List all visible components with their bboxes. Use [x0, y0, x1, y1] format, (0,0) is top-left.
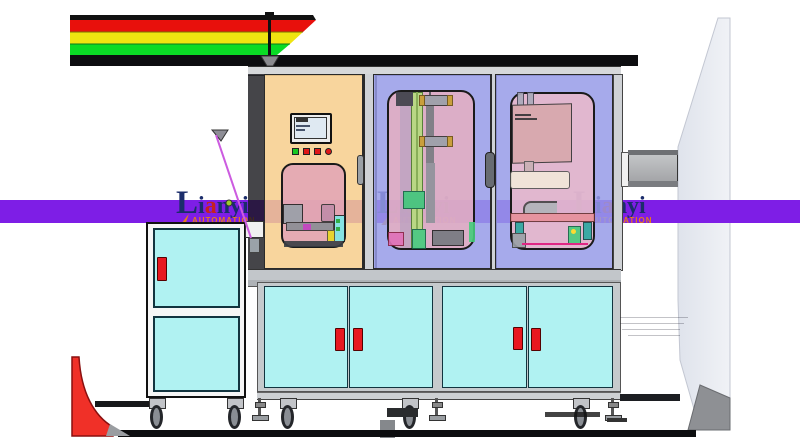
cabinet-handle — [335, 328, 345, 351]
hidden-line — [620, 323, 684, 324]
rear-caster-shadow — [545, 412, 600, 417]
process-door-handle — [485, 152, 495, 188]
label-line — [515, 118, 537, 120]
cart-base-bar — [95, 401, 149, 407]
floor-connector — [620, 394, 680, 401]
brass-fitting — [447, 95, 453, 106]
slide-rail — [426, 96, 434, 164]
small-motor — [321, 204, 335, 222]
cart-panel-lower — [153, 316, 240, 392]
cabinet-handle — [353, 328, 363, 351]
start-button — [292, 148, 299, 155]
drive-box — [403, 191, 425, 209]
control-door-handle — [357, 155, 364, 185]
side-actuator — [469, 222, 475, 242]
hmi-menubar — [296, 118, 308, 122]
brass-fitting — [447, 136, 453, 147]
track-line — [522, 243, 588, 245]
valve-led — [336, 219, 340, 223]
belt-seam — [416, 92, 418, 248]
corner-fixture — [512, 233, 526, 248]
mount-plate — [283, 204, 303, 224]
backing-panel — [512, 103, 572, 164]
rear-caster-shadow — [387, 408, 418, 417]
fixture-block — [388, 232, 404, 246]
hidden-line — [622, 329, 680, 330]
machine-layer — [0, 0, 800, 438]
frame-bracket — [249, 238, 260, 253]
hmi-text-line — [296, 129, 305, 131]
cabinet-handle — [513, 327, 523, 350]
connector-block — [303, 224, 311, 230]
reset-button — [314, 148, 321, 155]
rear-caster-shadow — [607, 418, 627, 422]
cart-caster — [148, 398, 166, 432]
transfer-rail — [510, 213, 595, 222]
cart-handle — [157, 257, 167, 281]
hmi-text-line — [296, 125, 310, 127]
emergency-stop-button — [325, 148, 332, 155]
cylinder-band — [628, 181, 678, 187]
machine-render: Lianyi AUTOMATION Lianyi AUTOMATION Lian… — [0, 0, 800, 438]
cabinet-center-post — [433, 286, 442, 388]
indicator-dot — [571, 229, 576, 234]
stop-button — [303, 148, 310, 155]
rail-pillar — [583, 222, 592, 240]
actuator-block — [412, 229, 426, 249]
brass-fitting — [419, 136, 425, 147]
cylinder-band — [628, 150, 678, 155]
hidden-line — [628, 335, 680, 336]
cross-beam — [510, 171, 570, 189]
cart-caster — [226, 398, 244, 432]
belt-frame — [400, 92, 411, 248]
label-line — [515, 114, 531, 116]
floor-bar — [118, 430, 696, 437]
leveling-foot — [252, 398, 268, 421]
machine-caster — [279, 398, 297, 432]
top-beam — [70, 55, 638, 66]
bottom-assembly — [432, 230, 464, 246]
leveling-foot — [429, 398, 445, 421]
transfer-tray — [245, 221, 264, 238]
valve-led — [336, 227, 340, 231]
cabinet-handle — [531, 328, 541, 351]
slide-carriage — [426, 163, 435, 223]
hidden-line — [620, 317, 688, 318]
base-plate — [284, 241, 343, 247]
belt-pulley — [396, 92, 413, 106]
brass-fitting — [419, 95, 425, 106]
